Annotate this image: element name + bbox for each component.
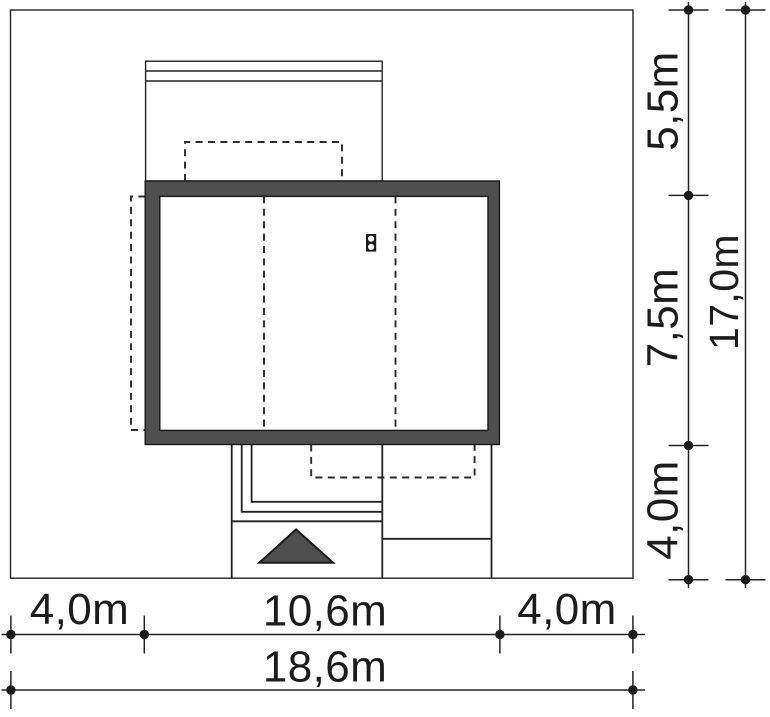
svg-text:17,0m: 17,0m — [701, 234, 747, 350]
svg-text:4,0m: 4,0m — [517, 585, 616, 634]
svg-text:4,0m: 4,0m — [30, 585, 129, 634]
svg-text:7,5m: 7,5m — [639, 268, 688, 367]
svg-text:10,6m: 10,6m — [263, 587, 387, 636]
svg-text:4,0m: 4,0m — [639, 460, 688, 559]
svg-text:18,6m: 18,6m — [263, 643, 387, 692]
svg-text:5,5m: 5,5m — [639, 51, 688, 150]
